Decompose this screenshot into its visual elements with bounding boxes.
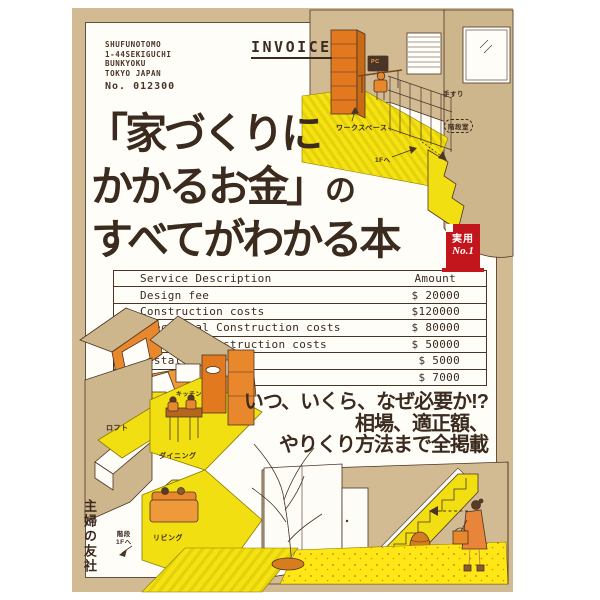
jitsuyo-no1-badge: 実用 No.1	[446, 224, 480, 269]
invoice-heading: INVOICE	[251, 38, 332, 59]
address-line: SHUFUNOTOMO	[105, 40, 172, 50]
tagline-line3: やりくり方法まで全掲載	[240, 435, 488, 457]
label-stairs-dest: 1Fへ	[116, 539, 132, 547]
title-line2-main: かかるお金」	[91, 163, 325, 210]
address-line: TOKYO JAPAN	[105, 69, 172, 79]
label-loft: ロフト	[106, 423, 129, 433]
sender-address: SHUFUNOTOMO 1-44SEKIGUCHI BUNKYOKU TOKYO…	[105, 40, 172, 78]
book-title-line3: すべてがわかる本	[91, 218, 398, 262]
label-stairs-word: 階段	[116, 531, 132, 539]
badge-text-top: 実用	[446, 230, 480, 245]
label-dining: ダイニング	[159, 451, 197, 461]
address-line: BUNKYOKU	[105, 59, 172, 69]
label-workspace: ワークスペース	[336, 123, 387, 133]
book-title-line2: かかるお金」の	[91, 165, 353, 213]
label-stairwell: 階段室	[444, 119, 473, 133]
tagline-line1: いつ、いくら、なぜ必要か!?	[240, 392, 488, 414]
label-to-1f: 1Fへ	[375, 154, 391, 164]
address-line: 1-44SEKIGUCHI	[105, 50, 172, 60]
badge-text-bottom: No.1	[446, 245, 480, 257]
label-handrail: 手すり	[443, 88, 464, 98]
label-stairs-to-1f: 階段 1Fへ	[116, 531, 132, 547]
badge-foot	[442, 268, 484, 272]
label-pc-monitor: PC	[371, 59, 380, 65]
label-kitchen: キッチン	[176, 389, 202, 398]
label-living: リビング	[153, 533, 183, 543]
title-line2-suffix: の	[325, 173, 353, 208]
invoice-number: No. 012300	[105, 81, 175, 92]
book-cover-page: Service Description Amount Design fee $ …	[0, 0, 600, 600]
tagline-line2: 相場、適正額、	[240, 414, 488, 436]
badge-notch	[446, 224, 453, 232]
publisher-name: 主婦の友社	[80, 499, 99, 574]
tagline: いつ、いくら、なぜ必要か!? 相場、適正額、 やりくり方法まで全掲載	[240, 392, 488, 457]
book-title-line1: 「家づくりに	[86, 112, 320, 156]
